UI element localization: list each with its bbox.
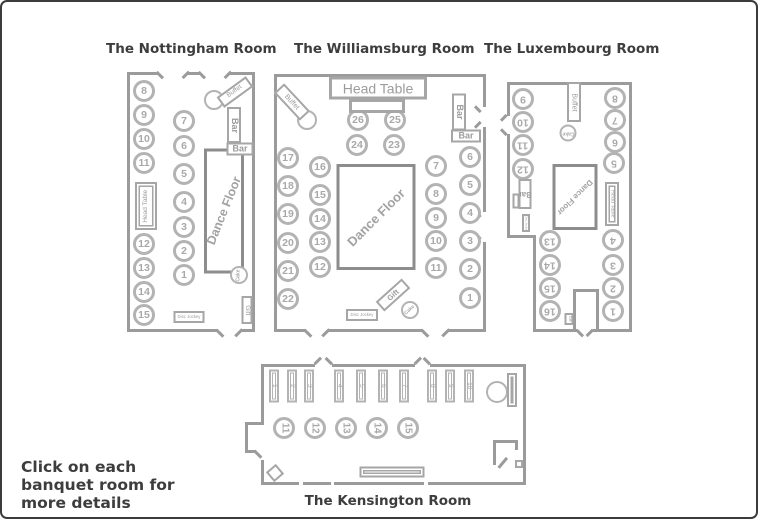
table-17: 17 [277, 147, 299, 169]
table-number: 18 [282, 181, 294, 192]
table-number: 19 [282, 209, 294, 220]
table-21: 21 [277, 260, 299, 282]
table-12: 12 [309, 256, 331, 278]
table-number: 8 [141, 86, 147, 97]
table-10: 10 [133, 128, 155, 150]
table-number: 4 [181, 197, 187, 208]
table-10: 10 [512, 111, 534, 133]
table-number: 23 [388, 140, 400, 151]
room-title-kensington: The Kensington Room [304, 493, 472, 509]
table-number: 15 [138, 310, 150, 321]
table-9: 9 [133, 104, 155, 126]
label-text: Buffet [283, 93, 301, 111]
table-7: 7 [399, 370, 409, 403]
table-number: 10 [466, 382, 473, 389]
buffet-table: Buffet [567, 82, 581, 122]
buffet-label: Buffet [274, 83, 310, 120]
wall-segment [274, 329, 305, 332]
table-number: 10 [138, 134, 150, 145]
disc-jockey-booth: Disc Jockey [522, 214, 530, 232]
table-number: 12 [138, 239, 150, 250]
table-12: 12 [512, 158, 534, 180]
table-number: 11 [138, 158, 149, 169]
table-number: 16 [314, 162, 326, 173]
door-tick [216, 329, 225, 338]
table-10: 10 [464, 370, 474, 403]
table-number: 5 [611, 158, 617, 169]
table-6: 6 [459, 146, 481, 168]
dance-floor-label: Dance Floor [556, 178, 594, 216]
door-tick [325, 357, 333, 365]
head-table-front [349, 99, 405, 113]
table-1: 1 [459, 287, 481, 309]
room-nottingham[interactable]: Dance Floor891011121314157654321CakeHead… [125, 64, 261, 344]
table-number: 7 [401, 384, 408, 388]
door-tick [414, 357, 422, 365]
room-title-nottingham: The Nottingham Room [106, 41, 266, 57]
table-number: 5 [467, 180, 473, 191]
door-tick [442, 329, 451, 338]
wall-segment [242, 329, 255, 332]
table-number: 10 [430, 236, 442, 247]
table-number: 9 [433, 213, 439, 224]
dance-floor-label: Dance Floor [345, 186, 407, 248]
door-tick [474, 121, 481, 128]
door-tick [198, 71, 206, 79]
table-1: 1 [269, 370, 279, 403]
table-7: 7 [425, 155, 447, 177]
table-number: 24 [351, 140, 363, 151]
wall-segment [430, 364, 526, 367]
gift-table: Gift [242, 296, 253, 324]
table-3: 3 [602, 254, 624, 276]
label-text: Cake [404, 304, 416, 316]
door-tick [224, 71, 232, 79]
table-20: 20 [277, 232, 299, 254]
wall-segment [507, 235, 536, 238]
table-1: 1 [173, 264, 195, 286]
table-7: 7 [604, 109, 626, 131]
table-14: 14 [133, 281, 155, 303]
label-text: Cake [562, 131, 574, 136]
wall-segment [261, 364, 264, 424]
label-text: Gift [386, 288, 401, 302]
table-5: 5 [173, 163, 195, 185]
wall-segment [573, 289, 599, 292]
table-number: 8 [433, 189, 439, 200]
door-tick [500, 114, 507, 121]
wall-segment [127, 72, 130, 332]
table-3: 3 [304, 370, 314, 403]
wall-segment [274, 74, 277, 332]
table-8: 8 [425, 183, 447, 205]
wall-segment [483, 127, 486, 212]
buffet-table [507, 373, 517, 407]
table-13: 13 [133, 257, 155, 279]
table-number: 12 [517, 164, 529, 175]
table-8: 8 [133, 80, 155, 102]
table-14: 14 [366, 417, 388, 439]
wall-segment [127, 72, 158, 75]
wall-segment [483, 242, 486, 332]
table-number: 22 [282, 294, 294, 305]
label-text: Bar [232, 145, 247, 154]
wall-segment [533, 329, 577, 332]
table-4: 4 [459, 202, 481, 224]
table-2: 2 [459, 258, 481, 280]
table-number: 2 [289, 384, 296, 388]
table-number: 14 [314, 214, 326, 225]
wall-segment [332, 364, 415, 367]
table-14: 14 [309, 208, 331, 230]
instruction-text: Click on each banquet room for more deta… [21, 459, 206, 512]
label-text: Bar [458, 132, 473, 141]
table-number: 1 [467, 293, 473, 304]
table-number: 17 [282, 153, 294, 164]
table-number: 4 [467, 208, 473, 219]
table-6: 6 [604, 131, 626, 153]
wall-segment [483, 74, 486, 107]
table-15: 15 [133, 304, 155, 326]
table-number: 7 [612, 115, 618, 126]
small-square [515, 460, 523, 468]
floorplan-canvas: Click on each banquet room for more deta… [2, 2, 756, 517]
table-15: 15 [309, 184, 331, 206]
dance-floor: Dance Floor [204, 149, 244, 274]
table-number: 11 [430, 263, 441, 274]
bar-label-upper: Bar [227, 107, 241, 143]
table-number: 5 [358, 384, 365, 388]
table-24: 24 [346, 134, 368, 156]
table-number: 15 [314, 190, 326, 201]
table-number: 2 [610, 283, 616, 294]
wall-segment [245, 422, 248, 453]
bar-label-lower: Bar [227, 143, 254, 156]
label-text: Disc Jockey [178, 315, 201, 319]
table-number: 11 [279, 423, 289, 434]
bar-label-upper: Bar [452, 94, 466, 131]
table-number: 16 [544, 306, 556, 317]
table-12: 12 [304, 417, 326, 439]
table-number: 26 [352, 115, 364, 126]
table-2: 2 [287, 370, 297, 403]
label-text: Buffet [226, 84, 243, 99]
wall-segment [449, 329, 486, 332]
table-7: 7 [173, 110, 195, 132]
wall-segment [428, 482, 526, 485]
wall-segment [507, 134, 510, 237]
table-9: 9 [425, 207, 447, 229]
table-19: 19 [277, 203, 299, 225]
door-tick [498, 457, 508, 469]
door-tick [423, 357, 431, 365]
long-table [360, 467, 425, 478]
table-number: 14 [138, 287, 150, 298]
wall-segment [261, 460, 264, 485]
door-tick [182, 71, 190, 79]
wall-segment [329, 329, 422, 332]
table-11: 11 [273, 417, 295, 439]
room-title-luxembourg: The Luxembourg Room [484, 41, 650, 57]
table-8: 8 [427, 370, 437, 403]
table-15: 15 [397, 417, 419, 439]
label-text: Head Table [343, 81, 414, 95]
wall-segment [334, 482, 424, 485]
door-tick [254, 450, 263, 459]
table-3: 3 [173, 216, 195, 238]
table-number: 2 [467, 264, 473, 275]
label-text: Gift [567, 316, 571, 321]
table-number: 7 [433, 161, 439, 172]
table-11: 11 [512, 134, 534, 156]
door-tick [322, 329, 331, 338]
table-number: 12 [314, 262, 326, 273]
table-number: 13 [544, 236, 556, 247]
table-15: 15 [539, 277, 561, 299]
table-number: 6 [612, 137, 618, 148]
table-number: 11 [517, 140, 528, 151]
table-number: 1 [181, 270, 187, 281]
table-11: 11 [133, 152, 155, 174]
table-5: 5 [459, 174, 481, 196]
table-number: 2 [181, 246, 187, 257]
table-14: 14 [539, 254, 561, 276]
bar-label-lower: Bar [451, 130, 481, 143]
gift-table: Gift [565, 313, 574, 325]
table-9: 9 [512, 88, 534, 110]
table-16: 16 [539, 300, 561, 322]
tilted-table [266, 464, 284, 482]
cake-table: Cake [401, 301, 419, 319]
table-number: 6 [467, 152, 473, 163]
table-number: 4 [610, 235, 616, 246]
disc-jockey-booth: Disc Jockey [174, 311, 205, 323]
table-6: 6 [378, 370, 388, 403]
table-8: 8 [604, 87, 626, 109]
table-4: 4 [173, 191, 195, 213]
room-title-williamsburg: The Williamsburg Room [294, 41, 462, 57]
table-18: 18 [277, 175, 299, 197]
table-3: 3 [459, 230, 481, 252]
table-number: 13 [138, 263, 150, 274]
table-13: 13 [309, 231, 331, 253]
table-12: 12 [133, 233, 155, 255]
head-table: Head Table [135, 182, 157, 230]
label-text: Cake [236, 269, 241, 281]
bar-label: Bar [519, 179, 532, 209]
table-13: 13 [539, 230, 561, 252]
wall-segment [493, 440, 496, 465]
table-11: 11 [425, 257, 447, 279]
wall-segment [507, 82, 510, 116]
door-tick [156, 71, 164, 79]
door-tick [235, 329, 244, 338]
table-13: 13 [335, 417, 357, 439]
room-williamsburg[interactable]: Dance Floor17181920212216151413122625242… [272, 64, 490, 342]
table-number: 13 [341, 422, 351, 433]
bar-side [513, 194, 520, 209]
table-2: 2 [602, 277, 624, 299]
table-number: 25 [389, 115, 401, 126]
table-number: 20 [282, 238, 294, 249]
wall-segment [252, 72, 255, 332]
table-9: 9 [445, 370, 455, 403]
table-number: 9 [520, 94, 526, 105]
dance-floor-label: Dance Floor [205, 175, 244, 247]
door-tick [304, 329, 313, 338]
table-number: 13 [314, 237, 326, 248]
dance-floor: Dance Floor [337, 164, 416, 270]
wall-segment [303, 482, 331, 485]
dance-floor: Dance Floor [553, 164, 598, 230]
floorplan-frame: Click on each banquet room for more deta… [0, 0, 758, 519]
table-number: 3 [306, 384, 313, 388]
wall-segment [261, 364, 315, 367]
table-number: 9 [141, 110, 147, 121]
wall-segment [127, 329, 217, 332]
table-number: 10 [517, 117, 529, 128]
room-luxembourg[interactable]: Dance Floor91011121314151687654321CakeBu… [500, 72, 636, 344]
buffet-circle [486, 381, 508, 403]
table-23: 23 [383, 134, 405, 156]
table-number: 1 [271, 384, 278, 388]
disc-jockey-booth: Disc Jockey [346, 309, 378, 321]
table-number: 1 [610, 306, 616, 317]
table-number: 8 [612, 93, 618, 104]
wall-segment [523, 364, 526, 485]
buffet-label: Buffet [217, 76, 254, 108]
table-number: 5 [181, 169, 187, 180]
label-text: Bar [518, 190, 531, 198]
door-tick [500, 128, 507, 135]
table-2: 2 [173, 240, 195, 262]
table-10: 10 [425, 230, 447, 252]
head-table: Head Table [329, 77, 427, 100]
label-text: Bar [230, 117, 239, 132]
table-number: 6 [380, 384, 387, 388]
label-text: Head Table [609, 190, 615, 218]
room-kensington[interactable]: 111213141512345678910 [242, 354, 530, 490]
wall-segment [596, 289, 599, 330]
table-number: 15 [403, 422, 413, 433]
door-tick [576, 329, 584, 337]
table-number: 8 [429, 384, 436, 388]
table-4: 4 [602, 229, 624, 251]
table-number: 12 [310, 422, 320, 433]
table-5: 5 [356, 370, 366, 403]
table-number: 3 [467, 236, 473, 247]
table-number: 4 [336, 384, 343, 388]
label-text: Disc Jockey [525, 215, 528, 231]
label-text: Bar [455, 104, 464, 119]
table-6: 6 [173, 135, 195, 157]
cake-table: Cake [560, 125, 577, 142]
table-number: 15 [544, 283, 556, 294]
head-table: Head Table [605, 182, 619, 226]
wall-segment [515, 440, 518, 450]
table-number: 3 [610, 260, 616, 271]
table-1: 1 [602, 300, 624, 322]
wall-segment [629, 82, 632, 332]
table-number: 14 [372, 422, 382, 433]
wall-segment [261, 482, 299, 485]
door-tick [421, 329, 430, 338]
table-number: 9 [447, 384, 454, 388]
label-text: Gift [244, 305, 251, 315]
table-number: 3 [181, 222, 187, 233]
table-number: 7 [181, 116, 187, 127]
table-number: 6 [181, 141, 187, 152]
door-tick [314, 357, 322, 365]
label-text: Head Table [143, 190, 150, 223]
table-22: 22 [277, 288, 299, 310]
label-text: Buffet [571, 93, 578, 111]
door-tick [586, 329, 594, 337]
table-5: 5 [603, 152, 625, 174]
label-text: Disc Jockey [351, 313, 374, 317]
wall-segment [533, 235, 536, 332]
table-4: 4 [334, 370, 344, 403]
table-number: 14 [544, 260, 556, 271]
cake-table: Cake [230, 266, 248, 284]
table-number: 21 [282, 266, 294, 277]
table-16: 16 [309, 156, 331, 178]
door-tick [474, 105, 481, 112]
